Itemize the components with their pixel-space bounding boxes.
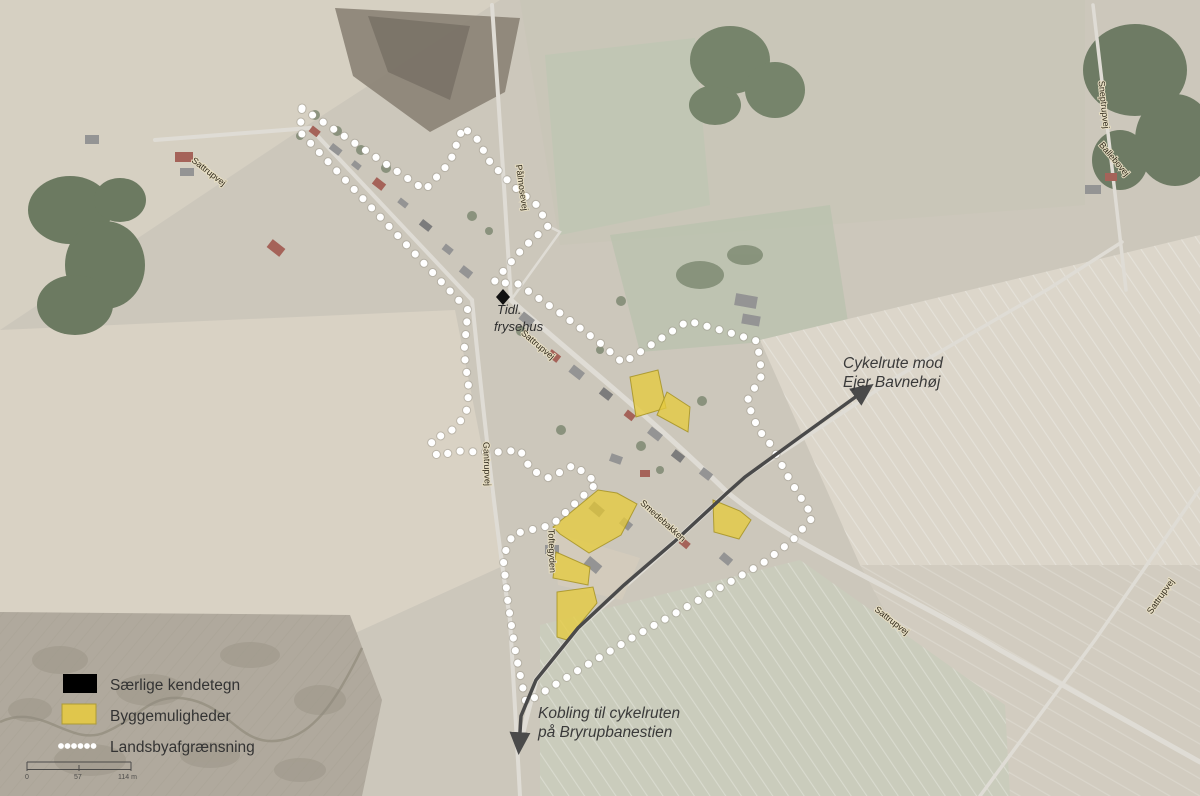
legend-label: Særlige kendetegn bbox=[110, 677, 240, 694]
map-legend: Særlige kendetegn Byggemuligheder Landsb… bbox=[58, 674, 255, 756]
annotation-cycle-route-ne: Ejer Bavnehøj bbox=[843, 374, 941, 391]
annotation-cycle-route-south: på Bryrupbanestien bbox=[537, 724, 672, 741]
road-label: Gantrupvej bbox=[481, 442, 493, 486]
map-canvas: Sattrupvej Pålmosevej Sattrupvej Gantrup… bbox=[0, 0, 1200, 796]
scale-middle: 57 bbox=[74, 774, 82, 781]
annotation-landmark: Tidl. bbox=[497, 302, 521, 317]
legend-swatch-yellow bbox=[62, 704, 96, 724]
scale-start: 0 bbox=[25, 774, 29, 781]
scale-end: 114 m bbox=[118, 774, 137, 781]
legend-label: Byggemuligheder bbox=[110, 708, 231, 725]
aerial-map: Sattrupvej Pålmosevej Sattrupvej Gantrup… bbox=[0, 0, 1200, 796]
road-label: Toftegyden bbox=[546, 529, 558, 573]
annotation-cycle-route-south: Kobling til cykelruten bbox=[538, 705, 680, 722]
legend-swatch-black bbox=[63, 674, 97, 693]
annotation-cycle-route-ne: Cykelrute mod bbox=[843, 355, 944, 372]
annotation-landmark: frysehus bbox=[494, 319, 544, 334]
legend-label: Landsbyafgrænsning bbox=[110, 739, 255, 756]
